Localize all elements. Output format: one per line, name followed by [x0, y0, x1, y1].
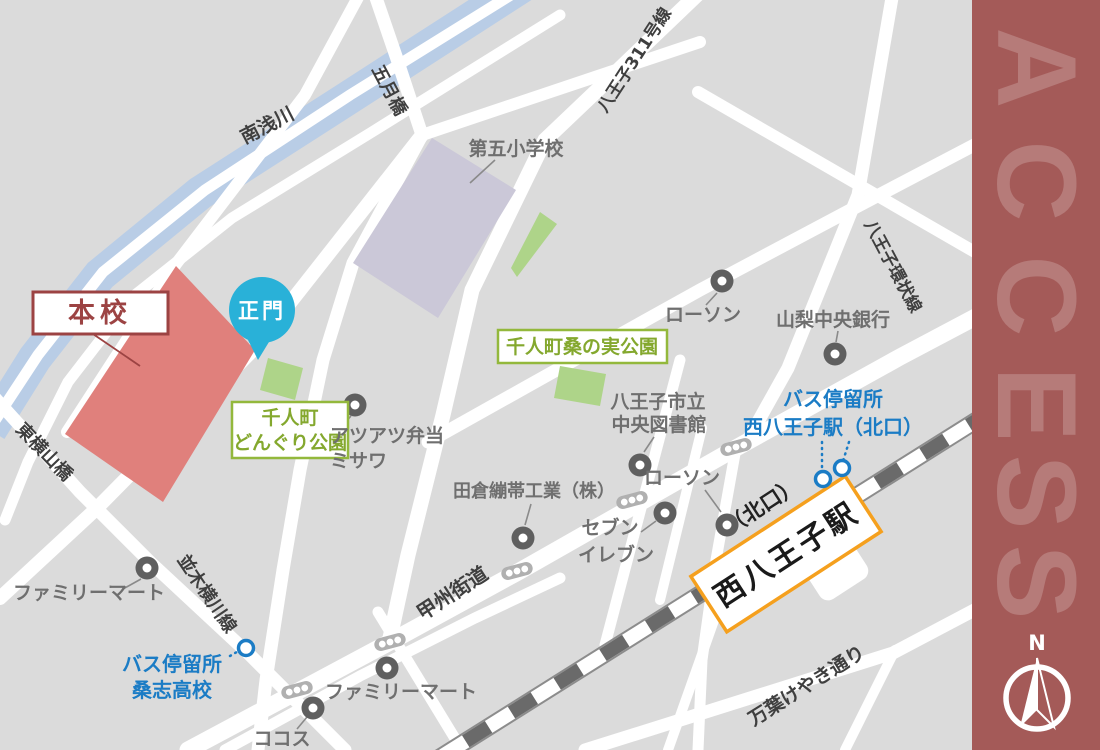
seimon-label: 正門: [238, 299, 286, 323]
city-map: 西八王子駅 （北口）: [0, 0, 972, 750]
compass-rose: N: [972, 628, 1100, 750]
atsuatsu-label-2: ミサワ: [330, 450, 387, 472]
daigo-label: 第五小学校: [468, 137, 564, 160]
bus-stop-soshi-label-2: 桑志高校: [132, 678, 213, 702]
honko-label-box: 本校: [33, 292, 168, 334]
pin-seven-eleven: [654, 502, 677, 525]
library-label-1: 八王子市立: [610, 390, 705, 413]
access-letter-c1: C: [980, 121, 1092, 241]
donguri-park-label-1: 千人町: [261, 407, 318, 429]
bus-stop-station-circle-1: [816, 472, 831, 487]
access-map-page: 西八王子駅 （北口）: [0, 0, 1100, 750]
library-label-2: 中央図書館: [611, 413, 706, 436]
compass-north-label: N: [1028, 631, 1046, 655]
access-letter-c2: C: [980, 236, 1092, 356]
seven-label-2: イレブン: [578, 543, 654, 566]
pin-cocos: [302, 697, 325, 720]
pin-takura: [512, 527, 535, 550]
access-sidebar: A C C E S S N: [972, 0, 1100, 750]
seven-label-1: セブン: [581, 516, 638, 539]
familymart-west-label: ファミリーマート: [13, 582, 165, 604]
bus-stop-soshi-label-1: バス停留所: [122, 652, 222, 676]
takura-label: 田倉繃帯工業（株）: [453, 480, 615, 502]
kuwanomi-park-box: 千人町桑の実公園: [498, 330, 667, 363]
pin-familymart-south: [376, 657, 399, 680]
familymart-south-label: ファミリーマート: [325, 681, 477, 703]
honko-label: 本校: [68, 297, 132, 329]
pin-familymart-west: [136, 557, 159, 580]
bus-stop-station-label-1: バス停留所: [783, 387, 883, 411]
bus-stop-station-circle-2: [835, 461, 850, 476]
cocos-label: ココス: [253, 728, 310, 750]
pin-lawson-north: [711, 270, 734, 293]
bus-stop-station-label-2: 西八王子駅（北口）: [743, 415, 923, 439]
kuwanomi-park-label: 千人町桑の実公園: [506, 335, 658, 358]
access-letter-a: A: [980, 8, 1092, 128]
pin-lawson-station: [716, 514, 739, 537]
yamanashi-bank-label: 山梨中央銀行: [776, 308, 890, 331]
pin-yamanashi-bank: [824, 343, 847, 366]
access-letter-s2: S: [980, 522, 1092, 642]
lawson-north-label: ローソン: [665, 304, 741, 326]
bus-stop-soshi-circle: [239, 641, 254, 656]
lawson-station-label: ローソン: [644, 467, 720, 489]
atsuatsu-label-1: アツアツ弁当: [330, 424, 444, 447]
